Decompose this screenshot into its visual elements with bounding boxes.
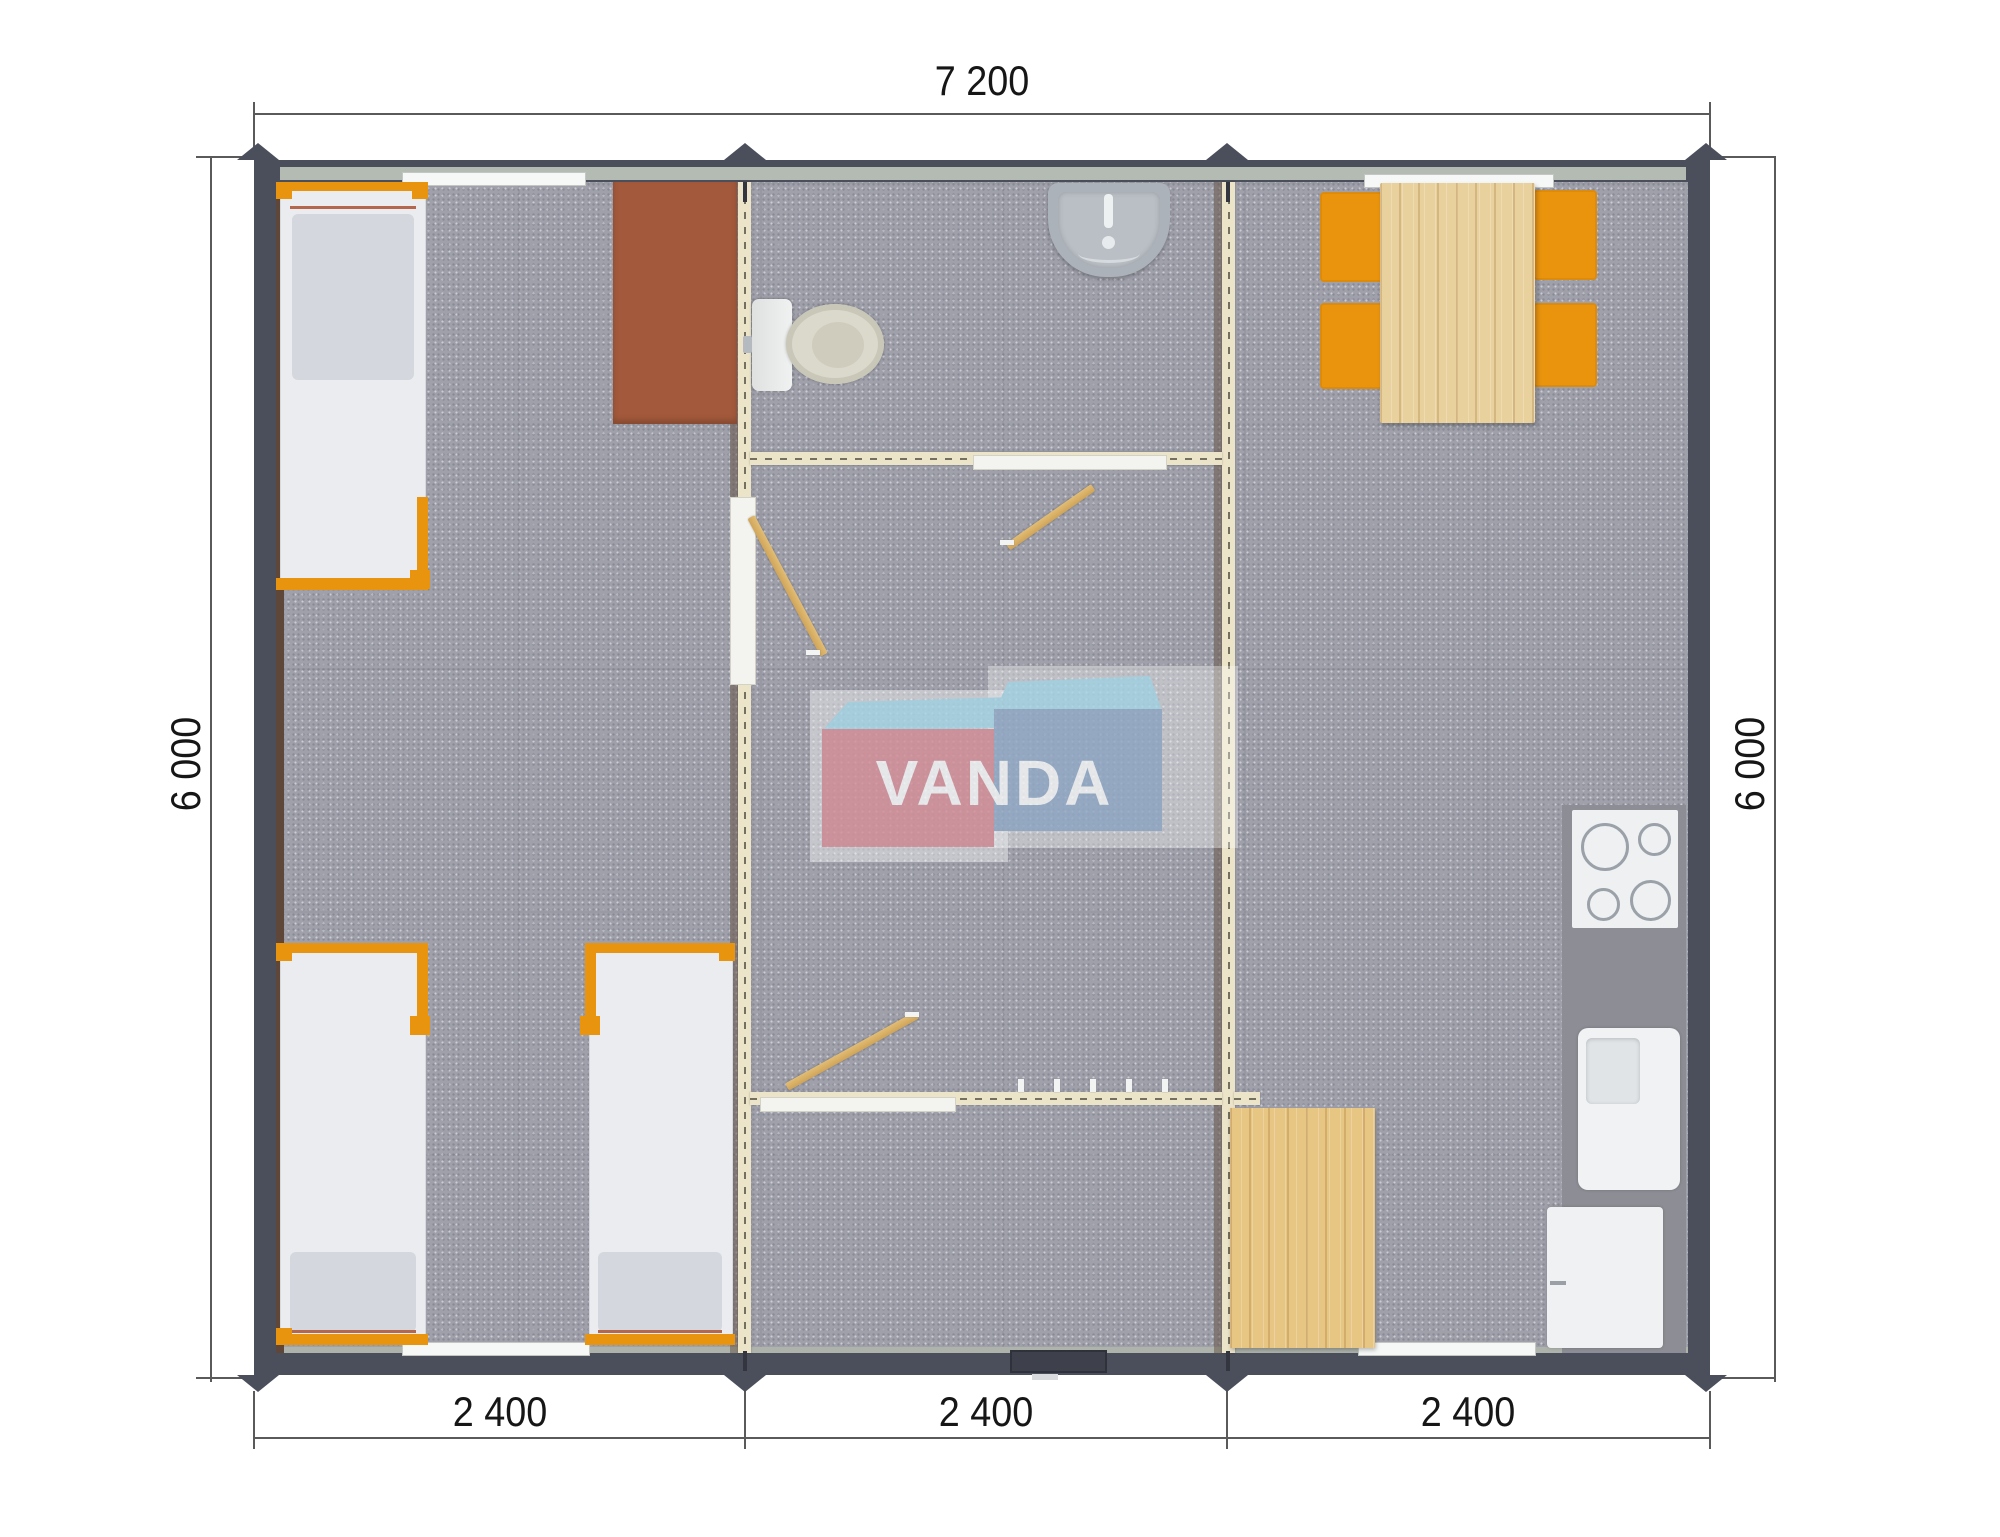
dim-bottom-module-2: 2 400 — [851, 1388, 1121, 1436]
module-joint-marker — [1685, 143, 1727, 160]
kitchen-sink-basin — [1586, 1038, 1640, 1104]
dim-line-top — [254, 113, 1710, 115]
bed-blanket-line — [290, 1330, 416, 1333]
module-joint-marker — [1206, 143, 1248, 160]
entrance-door — [1010, 1350, 1107, 1373]
module-joint-marker — [237, 143, 279, 160]
module-joint-marker — [1206, 1375, 1248, 1392]
dim-line-right — [1774, 156, 1776, 1382]
dim-tick — [744, 1391, 746, 1449]
dim-top-width: 7 200 — [802, 57, 1162, 105]
dim-tick — [1709, 1391, 1711, 1449]
bed-blanket-line — [290, 206, 416, 209]
bed-frame-bar — [276, 182, 428, 191]
floor-plan-canvas: 7 200 2 400 2 400 2 400 6 000 6 000 — [0, 0, 2000, 1537]
sliding-door-panel — [973, 455, 1167, 470]
coat-hook — [1162, 1079, 1168, 1092]
module-joint-marker — [724, 143, 766, 160]
door-hinge-mark — [806, 650, 820, 655]
bed-frame-corner — [412, 182, 428, 199]
burner-icon — [1587, 888, 1620, 921]
bed-frame-corner — [276, 1328, 292, 1345]
floor-mat — [1230, 1108, 1375, 1348]
toilet-flush-knob — [743, 336, 752, 353]
dining-chair — [1320, 192, 1384, 282]
logo-text: VANDA — [822, 746, 1167, 820]
basin-overflow-line — [1078, 244, 1140, 263]
module-wall-left-joint — [738, 182, 751, 1353]
dim-tick — [1709, 102, 1711, 148]
fridge-handle-icon — [1550, 1281, 1566, 1285]
door-hinge-mark — [1000, 540, 1014, 545]
burner-icon — [1581, 823, 1629, 871]
pillow — [290, 1252, 416, 1332]
joint-tick — [743, 1351, 747, 1371]
dim-tick — [253, 1391, 255, 1449]
coat-hook — [1054, 1079, 1060, 1092]
desk — [613, 182, 737, 424]
joint-tick — [743, 182, 747, 202]
faucet-icon — [1104, 194, 1113, 228]
coat-hook — [1090, 1079, 1096, 1092]
hall-wall-stub — [1234, 1092, 1260, 1105]
dim-bottom-module-3: 2 400 — [1333, 1388, 1603, 1436]
dim-tick — [1226, 1391, 1228, 1449]
sliding-door-panel — [760, 1097, 956, 1112]
bed-frame-corner — [580, 1016, 600, 1035]
coat-hook — [1126, 1079, 1132, 1092]
door-handle-icon — [1032, 1374, 1058, 1380]
bed-frame-bar — [585, 1334, 735, 1345]
burner-icon — [1638, 823, 1671, 856]
burner-icon — [1630, 880, 1671, 921]
window-sill — [402, 1342, 590, 1356]
window-sill — [402, 172, 586, 186]
bed-blanket-line — [598, 1330, 722, 1333]
window-sill — [1358, 1342, 1536, 1356]
bed-frame-corner — [410, 1016, 430, 1035]
module-joint-marker — [237, 1375, 279, 1392]
bed-frame-bar — [276, 1334, 428, 1345]
dining-chair — [1533, 303, 1597, 387]
dim-bottom-module-1: 2 400 — [365, 1388, 635, 1436]
module-joint-marker — [1685, 1375, 1727, 1392]
pillow — [598, 1252, 722, 1332]
bed-frame-bar — [276, 943, 428, 953]
dim-left-height: 6 000 — [164, 701, 208, 827]
bed-frame-bar — [276, 578, 428, 590]
dim-tick — [253, 102, 255, 148]
dim-line-left — [210, 156, 212, 1382]
joint-tick — [1226, 1351, 1230, 1371]
dim-right-height: 6 000 — [1728, 701, 1772, 827]
dining-table — [1380, 183, 1535, 423]
module-joint-marker — [724, 1375, 766, 1392]
bed-frame-corner — [719, 943, 735, 961]
coat-hook — [1018, 1079, 1024, 1092]
dining-chair — [1533, 190, 1597, 280]
door-hinge-mark — [905, 1012, 919, 1017]
dim-line-bottom — [254, 1437, 1710, 1439]
pillow — [292, 214, 414, 380]
bed-frame-corner — [276, 943, 292, 961]
bed-frame-corner — [276, 182, 292, 199]
joint-tick — [1226, 182, 1230, 202]
bed-frame-bar — [585, 943, 735, 953]
toilet-seat — [812, 322, 864, 368]
refrigerator — [1547, 1207, 1663, 1348]
dining-chair — [1320, 303, 1384, 389]
